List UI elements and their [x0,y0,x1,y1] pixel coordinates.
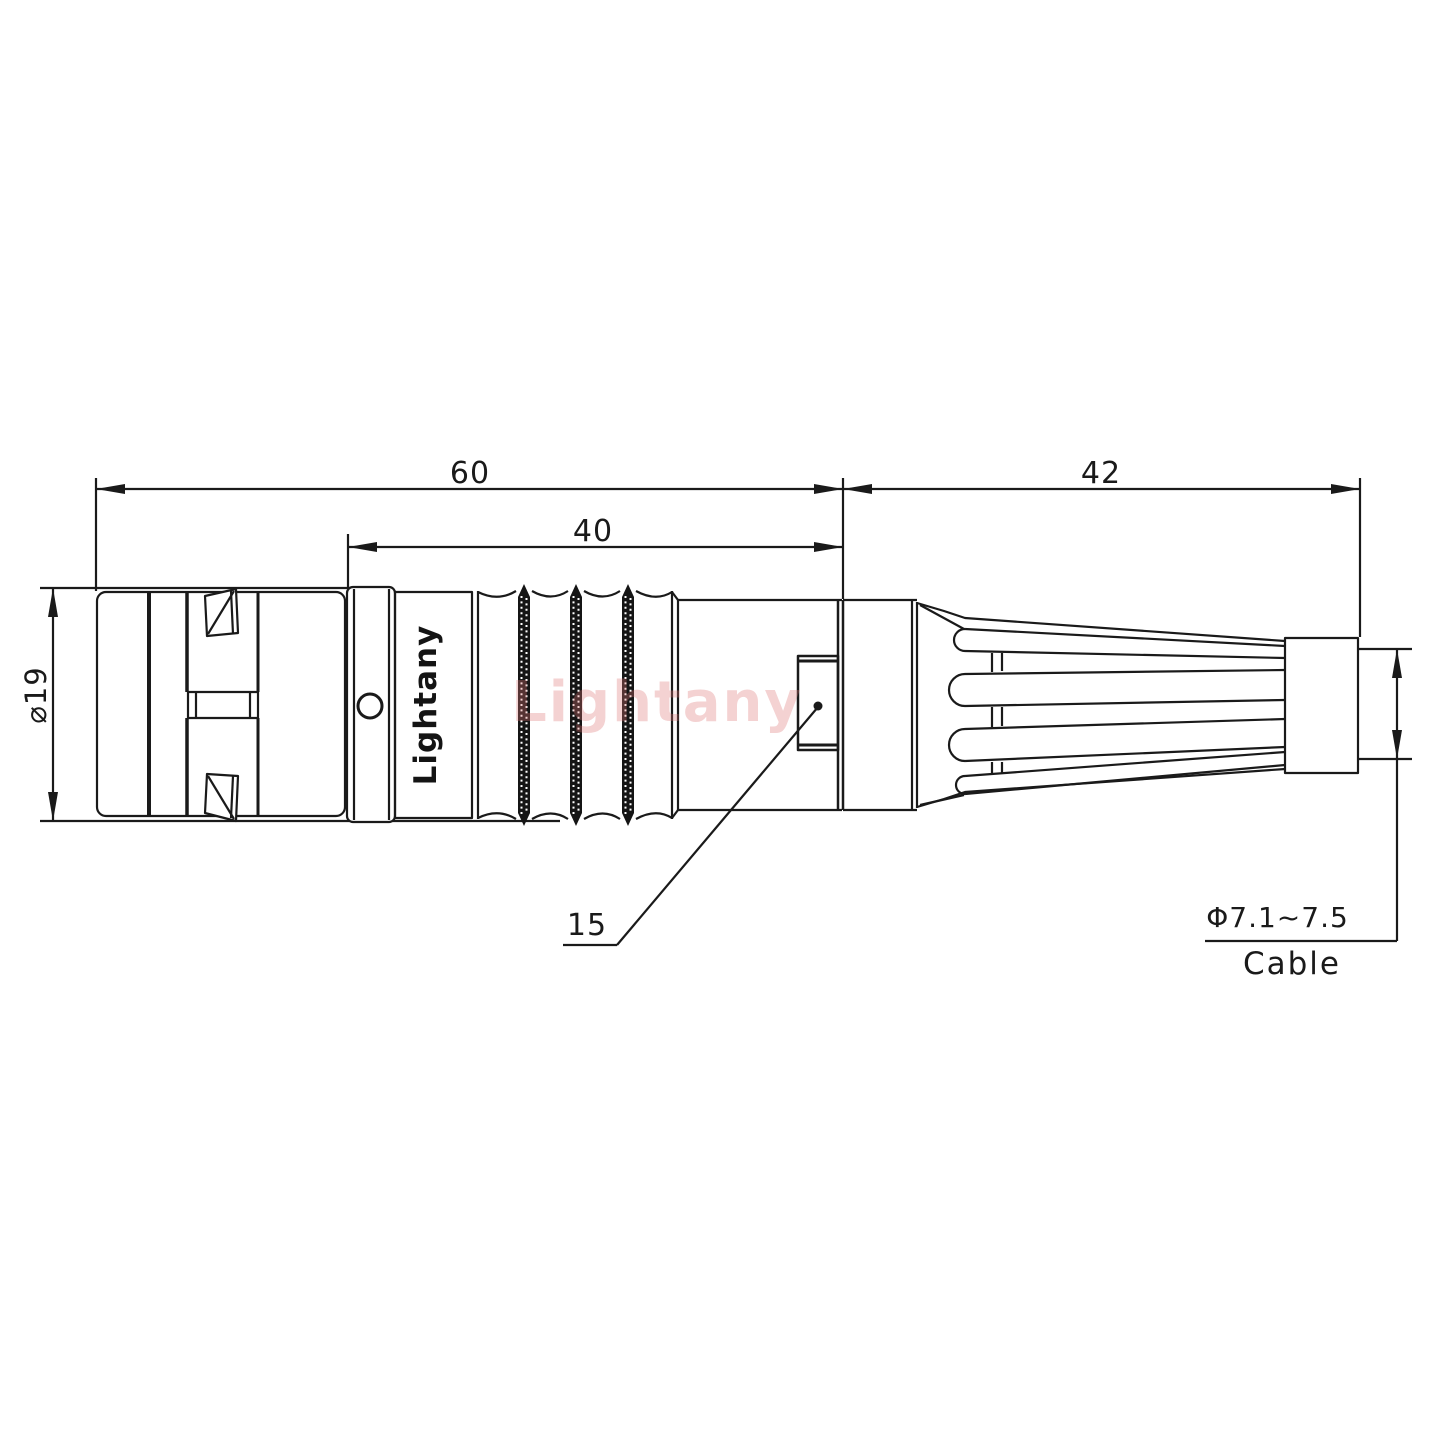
knurl-band [518,584,530,826]
knurl-band [570,584,582,826]
arrowhead [48,588,58,617]
arrowhead [348,542,377,552]
dimension-label-15: 15 [556,909,618,942]
arrowhead [814,484,843,494]
cable-caption: Cable [1207,947,1377,981]
rear-body [672,592,843,818]
body-logo-text: Lightany [409,620,451,790]
strain-relief-boot [917,603,1285,807]
boot-fin [949,670,1285,706]
arrowhead [1331,484,1360,494]
knurl-band [622,584,634,826]
arrowhead [1392,730,1402,759]
cable-sleeve [1285,638,1358,773]
coupling-collar [347,587,395,822]
back-nut [843,600,917,810]
boot-fin [954,629,1285,658]
arrowhead [814,542,843,552]
dimension-overall-length [96,478,843,599]
dimension-label-diameter-19: ⌀19 [21,640,53,750]
dimension-boot-length [843,478,1360,637]
drawing-canvas: 60 40 42 ⌀19 15 Φ7.1~7.5 Cable Lightany … [0,0,1440,1440]
arrowhead [96,484,125,494]
dimension-label-42: 42 [1051,457,1151,490]
cable-diameter-label: Φ7.1~7.5 [1190,903,1365,934]
arrowhead [1392,649,1402,678]
connector-drawing [0,0,1440,1440]
bottom-key [205,774,238,821]
arrowhead [843,484,872,494]
dimension-label-60: 60 [420,457,520,490]
dimension-front-diameter [40,588,560,821]
front-cap [97,589,345,821]
arrowhead [48,792,58,821]
dimension-label-40: 40 [543,515,643,548]
knurl-grip [478,584,672,826]
boot-core-ties [992,653,1002,774]
center-slot [188,692,258,718]
rear-key-window [798,656,838,750]
top-key [205,589,238,636]
